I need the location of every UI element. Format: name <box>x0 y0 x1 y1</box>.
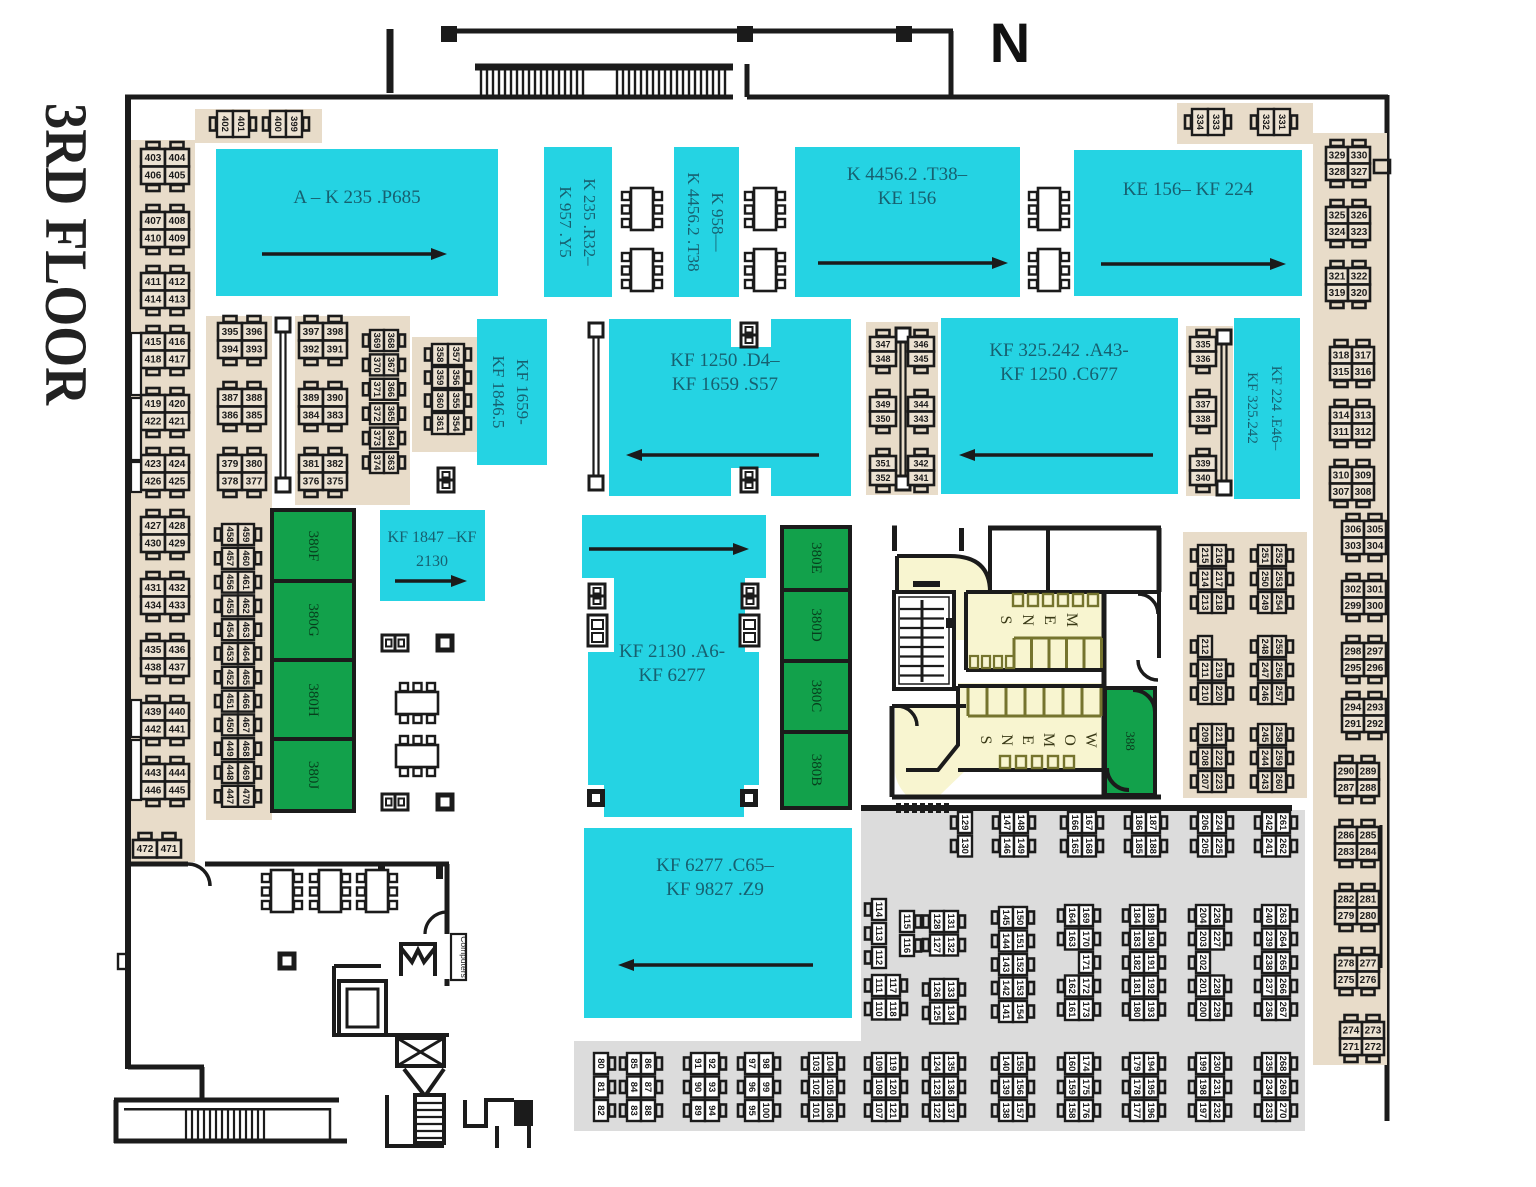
svg-text:463: 463 <box>240 622 251 638</box>
svg-text:306: 306 <box>1345 525 1362 536</box>
svg-text:291: 291 <box>1345 719 1362 730</box>
svg-text:363: 363 <box>385 455 396 471</box>
svg-text:410: 410 <box>145 234 162 245</box>
svg-text:218: 218 <box>1213 595 1224 611</box>
svg-text:360: 360 <box>434 393 445 409</box>
svg-text:455: 455 <box>224 598 235 615</box>
svg-text:439: 439 <box>145 707 162 718</box>
svg-text:401: 401 <box>235 116 246 133</box>
svg-text:KF 1250 .D4–: KF 1250 .D4– <box>670 350 780 371</box>
svg-text:279: 279 <box>1338 911 1355 922</box>
svg-text:194: 194 <box>1145 1056 1156 1073</box>
svg-text:183: 183 <box>1131 931 1142 947</box>
svg-text:KE 156– KF 224: KE 156– KF 224 <box>1123 179 1254 200</box>
svg-text:133: 133 <box>945 982 956 998</box>
svg-text:244: 244 <box>1259 750 1270 767</box>
svg-text:324: 324 <box>1329 227 1346 238</box>
svg-text:216: 216 <box>1213 548 1224 564</box>
svg-text:88: 88 <box>642 1105 653 1116</box>
svg-text:KE 156: KE 156 <box>878 188 937 209</box>
svg-text:392: 392 <box>303 345 320 356</box>
svg-text:89: 89 <box>692 1105 703 1116</box>
svg-text:132: 132 <box>945 937 956 953</box>
svg-text:270: 270 <box>1277 1103 1288 1119</box>
svg-text:188: 188 <box>1147 838 1158 854</box>
svg-text:189: 189 <box>1145 908 1156 924</box>
svg-text:196: 196 <box>1145 1103 1156 1119</box>
svg-text:294: 294 <box>1345 703 1362 714</box>
svg-text:151: 151 <box>1014 933 1025 950</box>
svg-text:272: 272 <box>1365 1042 1382 1053</box>
svg-text:175: 175 <box>1080 1079 1091 1096</box>
svg-text:231: 231 <box>1211 1079 1222 1096</box>
svg-text:117: 117 <box>887 978 898 993</box>
svg-text:3RD FLOOR: 3RD FLOOR <box>33 103 99 406</box>
svg-text:167: 167 <box>1083 815 1094 831</box>
svg-text:206: 206 <box>1199 815 1210 831</box>
svg-text:450: 450 <box>224 717 235 733</box>
svg-text:155: 155 <box>1014 1056 1025 1073</box>
svg-text:377: 377 <box>246 477 263 488</box>
svg-text:425: 425 <box>169 477 186 488</box>
svg-text:KF 6277 .C65–: KF 6277 .C65– <box>656 855 774 876</box>
svg-text:346: 346 <box>913 340 928 350</box>
svg-text:380E: 380E <box>808 542 824 574</box>
svg-text:92: 92 <box>706 1058 717 1069</box>
svg-text:281: 281 <box>1360 895 1377 906</box>
svg-text:459: 459 <box>240 527 251 543</box>
svg-text:393: 393 <box>246 345 263 356</box>
svg-text:319: 319 <box>1329 288 1346 299</box>
svg-text:336: 336 <box>1195 354 1210 364</box>
svg-text:395: 395 <box>222 327 239 338</box>
svg-text:KF 1659-: KF 1659- <box>513 359 532 425</box>
svg-text:91: 91 <box>692 1058 703 1069</box>
svg-text:K 4456.2 .T38–: K 4456.2 .T38– <box>847 164 968 185</box>
svg-text:211: 211 <box>1199 662 1210 678</box>
svg-text:275: 275 <box>1338 975 1355 986</box>
svg-text:142: 142 <box>1000 980 1011 996</box>
svg-text:198: 198 <box>1197 1079 1208 1095</box>
svg-text:115: 115 <box>901 914 912 930</box>
svg-text:242: 242 <box>1263 815 1274 831</box>
svg-text:245: 245 <box>1259 727 1270 744</box>
svg-text:337: 337 <box>1195 400 1210 410</box>
svg-text:239: 239 <box>1263 931 1274 947</box>
svg-text:240: 240 <box>1263 908 1274 924</box>
svg-text:252: 252 <box>1273 548 1284 564</box>
svg-text:179: 179 <box>1131 1056 1142 1072</box>
svg-text:182: 182 <box>1131 955 1142 971</box>
svg-text:N: N <box>998 734 1015 746</box>
svg-text:127: 127 <box>931 937 942 953</box>
svg-text:329: 329 <box>1329 151 1346 162</box>
svg-text:136: 136 <box>945 1079 956 1095</box>
svg-text:130: 130 <box>959 838 970 854</box>
svg-text:470: 470 <box>240 788 251 804</box>
svg-text:333: 333 <box>1210 114 1221 130</box>
svg-text:380H: 380H <box>305 683 321 717</box>
svg-text:254: 254 <box>1273 595 1284 612</box>
svg-text:86: 86 <box>642 1058 653 1069</box>
svg-text:389: 389 <box>303 393 320 404</box>
svg-text:398: 398 <box>327 327 344 338</box>
svg-text:83: 83 <box>628 1105 639 1116</box>
svg-text:KF 1250 .C677: KF 1250 .C677 <box>1000 364 1118 385</box>
svg-text:400: 400 <box>272 116 283 132</box>
svg-text:408: 408 <box>169 216 186 227</box>
svg-text:209: 209 <box>1199 727 1210 743</box>
svg-text:443: 443 <box>145 768 162 779</box>
svg-text:195: 195 <box>1145 1079 1156 1096</box>
svg-text:171: 171 <box>1080 955 1091 972</box>
svg-text:237: 237 <box>1263 978 1274 994</box>
svg-text:204: 204 <box>1197 908 1208 925</box>
svg-text:208: 208 <box>1199 750 1210 766</box>
svg-text:93: 93 <box>706 1082 717 1093</box>
svg-text:80: 80 <box>595 1058 606 1069</box>
svg-text:322: 322 <box>1351 272 1368 283</box>
svg-text:467: 467 <box>240 717 251 733</box>
svg-text:173: 173 <box>1080 1002 1091 1018</box>
svg-text:431: 431 <box>145 583 162 594</box>
svg-text:199: 199 <box>1197 1056 1208 1072</box>
svg-text:420: 420 <box>169 399 186 410</box>
svg-text:358: 358 <box>434 347 445 363</box>
svg-text:371: 371 <box>371 381 382 398</box>
svg-text:423: 423 <box>145 459 162 470</box>
svg-text:157: 157 <box>1014 1103 1025 1119</box>
svg-text:340: 340 <box>1195 473 1210 483</box>
svg-text:143: 143 <box>1000 957 1011 973</box>
svg-text:305: 305 <box>1367 525 1384 536</box>
svg-text:461: 461 <box>240 574 251 591</box>
svg-text:388: 388 <box>1123 731 1138 751</box>
svg-text:316: 316 <box>1355 367 1372 378</box>
svg-text:131: 131 <box>945 914 956 931</box>
svg-text:229: 229 <box>1211 1002 1222 1018</box>
svg-text:KF 1846.5: KF 1846.5 <box>489 356 508 429</box>
svg-text:166: 166 <box>1069 815 1080 831</box>
svg-text:419: 419 <box>145 399 162 410</box>
svg-text:366: 366 <box>385 381 396 397</box>
svg-text:152: 152 <box>1014 957 1025 973</box>
svg-text:185: 185 <box>1133 838 1144 855</box>
svg-text:307: 307 <box>1333 487 1350 498</box>
svg-text:299: 299 <box>1345 601 1362 612</box>
svg-text:469: 469 <box>240 765 251 781</box>
svg-text:N: N <box>1019 614 1036 626</box>
svg-text:284: 284 <box>1360 847 1377 858</box>
svg-text:141: 141 <box>1000 1004 1011 1021</box>
svg-text:273: 273 <box>1365 1026 1382 1037</box>
svg-text:236: 236 <box>1263 1002 1274 1018</box>
svg-text:287: 287 <box>1338 783 1355 794</box>
svg-text:A – K 235 .P685: A – K 235 .P685 <box>293 187 420 208</box>
svg-text:257: 257 <box>1273 686 1284 702</box>
svg-text:288: 288 <box>1360 783 1377 794</box>
svg-text:355: 355 <box>450 393 461 410</box>
svg-text:98: 98 <box>760 1058 771 1069</box>
svg-text:219: 219 <box>1213 662 1224 678</box>
svg-text:178: 178 <box>1131 1079 1142 1095</box>
svg-text:380J: 380J <box>305 761 321 790</box>
svg-text:454: 454 <box>224 622 235 639</box>
svg-text:139: 139 <box>1000 1079 1011 1095</box>
svg-text:169: 169 <box>1080 908 1091 924</box>
svg-text:269: 269 <box>1277 1079 1288 1095</box>
svg-text:180: 180 <box>1131 1002 1142 1018</box>
svg-text:174: 174 <box>1080 1056 1091 1073</box>
svg-text:264: 264 <box>1277 931 1288 948</box>
svg-text:108: 108 <box>873 1079 884 1095</box>
svg-text:164: 164 <box>1066 908 1077 925</box>
svg-text:267: 267 <box>1277 1002 1288 1018</box>
svg-text:137: 137 <box>945 1103 956 1119</box>
svg-text:428: 428 <box>169 521 186 532</box>
svg-text:356: 356 <box>450 370 461 386</box>
svg-text:404: 404 <box>169 153 186 164</box>
svg-text:159: 159 <box>1066 1079 1077 1095</box>
svg-text:277: 277 <box>1360 959 1377 970</box>
svg-text:295: 295 <box>1345 663 1362 674</box>
svg-text:S: S <box>977 736 994 745</box>
svg-text:97: 97 <box>746 1058 757 1069</box>
svg-text:402: 402 <box>219 116 230 132</box>
svg-text:338: 338 <box>1195 414 1210 424</box>
svg-text:222: 222 <box>1213 750 1224 766</box>
svg-text:111: 111 <box>873 978 884 994</box>
svg-text:145: 145 <box>1000 910 1011 927</box>
svg-text:243: 243 <box>1259 774 1270 790</box>
svg-text:E: E <box>1041 615 1058 625</box>
svg-text:K 4456.2 .T38: K 4456.2 .T38 <box>684 172 703 271</box>
svg-text:210: 210 <box>1199 686 1210 702</box>
svg-text:228: 228 <box>1211 978 1222 994</box>
svg-text:378: 378 <box>222 477 239 488</box>
svg-text:380F: 380F <box>305 531 321 562</box>
svg-text:225: 225 <box>1213 838 1224 855</box>
svg-text:M: M <box>1040 733 1057 747</box>
svg-text:246: 246 <box>1259 686 1270 702</box>
svg-text:262: 262 <box>1277 838 1288 854</box>
svg-text:154: 154 <box>1014 1004 1025 1021</box>
svg-text:110: 110 <box>873 1001 884 1016</box>
svg-text:289: 289 <box>1360 767 1377 778</box>
svg-text:403: 403 <box>145 153 162 164</box>
svg-text:417: 417 <box>169 355 186 366</box>
svg-text:412: 412 <box>169 277 186 288</box>
svg-text:418: 418 <box>145 355 162 366</box>
svg-text:301: 301 <box>1367 585 1384 596</box>
svg-text:350: 350 <box>875 414 890 424</box>
svg-text:125: 125 <box>931 1005 942 1022</box>
svg-text:161: 161 <box>1066 1002 1077 1019</box>
svg-text:372: 372 <box>371 406 382 422</box>
svg-text:330: 330 <box>1351 151 1368 162</box>
svg-text:106: 106 <box>824 1103 835 1119</box>
svg-text:380C: 380C <box>808 680 824 713</box>
svg-text:109: 109 <box>873 1056 884 1072</box>
svg-text:241: 241 <box>1263 838 1274 855</box>
svg-text:249: 249 <box>1259 595 1270 611</box>
svg-text:452: 452 <box>224 669 235 685</box>
svg-text:W: W <box>1082 732 1099 748</box>
svg-text:349: 349 <box>875 400 890 410</box>
svg-text:261: 261 <box>1277 815 1288 832</box>
svg-text:116: 116 <box>901 938 912 953</box>
svg-text:386: 386 <box>222 411 239 422</box>
svg-text:85: 85 <box>628 1058 639 1069</box>
svg-text:122: 122 <box>931 1103 942 1119</box>
svg-text:203: 203 <box>1197 931 1208 947</box>
svg-text:343: 343 <box>913 414 928 424</box>
svg-text:323: 323 <box>1351 227 1368 238</box>
svg-text:464: 464 <box>240 646 251 663</box>
svg-text:344: 344 <box>913 400 928 410</box>
svg-text:313: 313 <box>1355 411 1372 422</box>
svg-text:197: 197 <box>1197 1103 1208 1119</box>
svg-text:285: 285 <box>1360 831 1377 842</box>
svg-text:87: 87 <box>642 1082 653 1093</box>
svg-text:114: 114 <box>873 902 884 918</box>
svg-text:107: 107 <box>873 1103 884 1119</box>
svg-text:235: 235 <box>1263 1056 1274 1073</box>
svg-text:445: 445 <box>169 786 186 797</box>
svg-text:144: 144 <box>1000 933 1011 950</box>
svg-text:191: 191 <box>1145 955 1156 972</box>
svg-text:95: 95 <box>746 1105 757 1116</box>
svg-text:429: 429 <box>169 539 186 550</box>
svg-text:311: 311 <box>1333 427 1350 438</box>
svg-text:105: 105 <box>824 1079 835 1096</box>
svg-text:466: 466 <box>240 693 251 709</box>
svg-text:256: 256 <box>1273 662 1284 678</box>
svg-text:149: 149 <box>1015 838 1026 854</box>
svg-text:292: 292 <box>1367 719 1384 730</box>
svg-text:253: 253 <box>1273 571 1284 587</box>
svg-text:202: 202 <box>1197 955 1208 971</box>
svg-text:247: 247 <box>1259 662 1270 678</box>
svg-text:320: 320 <box>1351 288 1368 299</box>
svg-text:435: 435 <box>145 645 162 656</box>
svg-text:341: 341 <box>913 473 928 483</box>
svg-text:158: 158 <box>1066 1103 1077 1119</box>
svg-text:290: 290 <box>1338 767 1355 778</box>
svg-text:444: 444 <box>169 768 186 779</box>
svg-text:300: 300 <box>1367 601 1384 612</box>
svg-text:437: 437 <box>169 663 186 674</box>
svg-text:405: 405 <box>169 171 186 182</box>
svg-text:103: 103 <box>810 1056 821 1072</box>
svg-text:451: 451 <box>224 693 235 710</box>
svg-text:276: 276 <box>1360 975 1377 986</box>
svg-text:298: 298 <box>1345 647 1362 658</box>
svg-text:150: 150 <box>1014 910 1025 926</box>
svg-text:217: 217 <box>1213 571 1224 587</box>
svg-text:128: 128 <box>931 914 942 930</box>
svg-text:283: 283 <box>1338 847 1355 858</box>
svg-text:379: 379 <box>222 459 239 470</box>
svg-text:S: S <box>997 616 1014 625</box>
svg-text:460: 460 <box>240 550 251 566</box>
svg-text:407: 407 <box>145 216 162 227</box>
svg-text:380B: 380B <box>808 754 824 787</box>
svg-text:315: 315 <box>1333 367 1350 378</box>
svg-text:317: 317 <box>1355 351 1372 362</box>
svg-text:293: 293 <box>1367 703 1384 714</box>
svg-text:124: 124 <box>931 1056 942 1073</box>
svg-text:370: 370 <box>371 357 382 373</box>
svg-text:321: 321 <box>1329 272 1346 283</box>
svg-text:119: 119 <box>887 1056 898 1071</box>
svg-text:357: 357 <box>450 347 461 363</box>
svg-text:263: 263 <box>1277 908 1288 924</box>
svg-text:KF 224 .E46–: KF 224 .E46– <box>1268 366 1284 451</box>
svg-text:KF 325.242 .A43-: KF 325.242 .A43- <box>989 340 1128 361</box>
svg-text:84: 84 <box>628 1082 639 1093</box>
svg-text:424: 424 <box>169 459 186 470</box>
svg-text:K 957 .Y5: K 957 .Y5 <box>556 186 575 257</box>
svg-text:172: 172 <box>1080 978 1091 994</box>
svg-text:M: M <box>1063 613 1080 627</box>
svg-text:416: 416 <box>169 337 186 348</box>
svg-text:326: 326 <box>1351 211 1368 222</box>
svg-text:234: 234 <box>1263 1079 1274 1096</box>
svg-text:187: 187 <box>1147 815 1158 831</box>
svg-text:112: 112 <box>873 950 884 965</box>
svg-text:223: 223 <box>1213 774 1224 790</box>
svg-text:168: 168 <box>1083 838 1094 854</box>
svg-text:221: 221 <box>1213 727 1224 744</box>
svg-text:265: 265 <box>1277 955 1288 972</box>
svg-text:440: 440 <box>169 707 186 718</box>
svg-text:129: 129 <box>959 815 970 831</box>
svg-text:162: 162 <box>1066 978 1077 994</box>
svg-text:387: 387 <box>222 393 239 404</box>
svg-text:310: 310 <box>1333 471 1350 482</box>
svg-text:297: 297 <box>1367 647 1384 658</box>
svg-text:381: 381 <box>303 459 320 470</box>
svg-text:227: 227 <box>1211 931 1222 947</box>
svg-text:184: 184 <box>1131 908 1142 925</box>
svg-text:232: 232 <box>1211 1103 1222 1119</box>
svg-text:K 235 .R32–: K 235 .R32– <box>580 178 599 266</box>
svg-text:Computers: Computers <box>459 936 469 978</box>
svg-text:380G: 380G <box>305 603 321 637</box>
svg-text:391: 391 <box>327 345 344 356</box>
svg-text:396: 396 <box>246 327 263 338</box>
svg-text:193: 193 <box>1145 1002 1156 1018</box>
svg-text:94: 94 <box>706 1105 717 1116</box>
svg-text:233: 233 <box>1263 1103 1274 1119</box>
svg-text:135: 135 <box>945 1056 956 1073</box>
svg-text:238: 238 <box>1263 955 1274 971</box>
svg-text:447: 447 <box>224 788 235 804</box>
svg-text:274: 274 <box>1343 1026 1360 1037</box>
svg-text:385: 385 <box>246 411 263 422</box>
svg-text:390: 390 <box>327 393 344 404</box>
svg-text:339: 339 <box>1195 459 1210 469</box>
svg-text:352: 352 <box>875 473 890 483</box>
svg-text:309: 309 <box>1355 471 1372 482</box>
svg-text:170: 170 <box>1080 931 1091 947</box>
svg-text:375: 375 <box>327 477 344 488</box>
svg-text:176: 176 <box>1080 1103 1091 1119</box>
svg-text:422: 422 <box>145 417 162 428</box>
svg-text:O: O <box>1061 734 1078 746</box>
svg-text:286: 286 <box>1338 831 1355 842</box>
